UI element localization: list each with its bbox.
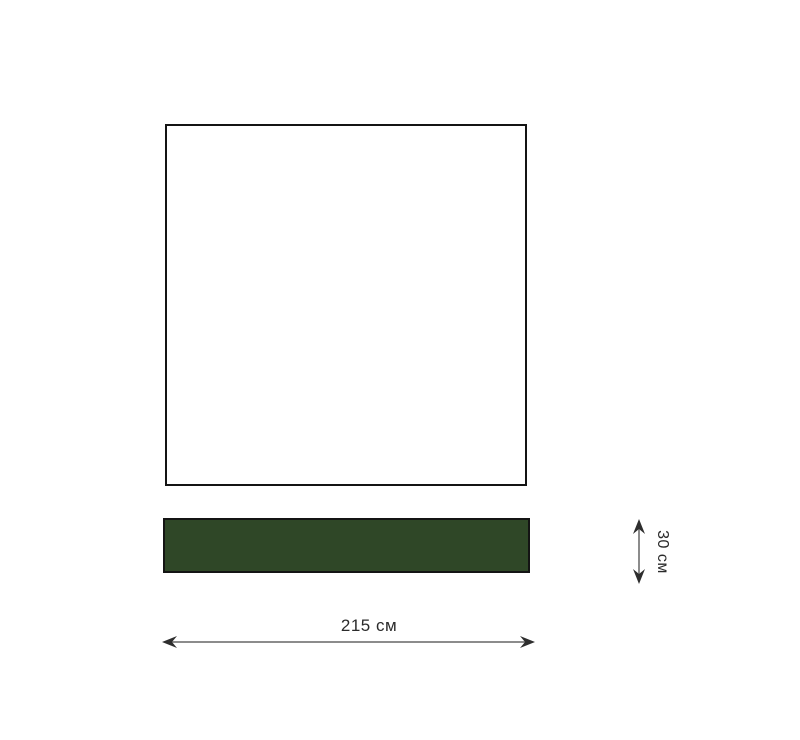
width-arrow-head-left-icon <box>162 636 177 648</box>
panel-square <box>165 124 527 486</box>
width-dimension-arrow <box>162 636 535 648</box>
height-arrow-head-top-icon <box>633 519 645 534</box>
height-arrow-head-bottom-icon <box>633 569 645 584</box>
dimension-diagram: 215 см 30 см <box>0 0 800 740</box>
height-dimension-arrow <box>633 519 645 584</box>
base-bar <box>163 518 530 573</box>
height-dimension-label: 30 см <box>654 530 670 574</box>
width-arrow-head-right-icon <box>520 636 535 648</box>
width-dimension-label: 215 см <box>341 617 397 634</box>
